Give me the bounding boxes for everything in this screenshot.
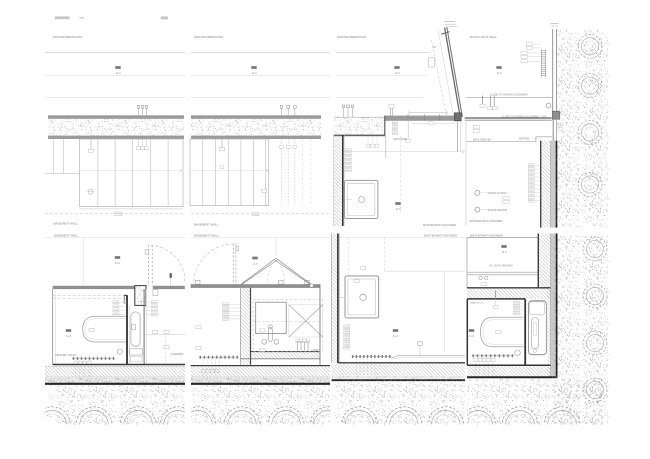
- svg-text:MASTER BATH SHOWER: MASTER BATH SHOWER: [470, 219, 503, 223]
- svg-text:CLOSE TO NOMINAL ALIGNMENT: CLOSE TO NOMINAL ALIGNMENT: [490, 94, 528, 97]
- svg-text:BASEMENT WALL: BASEMENT WALL: [194, 234, 219, 238]
- svg-text:11.0: 11.0: [501, 250, 507, 254]
- svg-text:MASTER BATH SHOWER: MASTER BATH SHOWER: [423, 223, 456, 227]
- svg-text:11.0: 11.0: [66, 334, 72, 338]
- svg-text:11.0: 11.0: [393, 334, 399, 338]
- svg-text:11.0: 11.0: [115, 71, 121, 75]
- svg-text:11.0: 11.0: [252, 261, 258, 265]
- svg-text:UP: UP: [433, 45, 437, 49]
- svg-text:WASTE DEVICE: WASTE DEVICE: [488, 208, 508, 212]
- svg-text:MASTER TOILET: MASTER TOILET: [56, 353, 77, 357]
- svg-text:LAVATO: LAVATO: [312, 349, 321, 352]
- svg-text:ROOF LIGHT WALL: ROOF LIGHT WALL: [470, 35, 498, 39]
- svg-text:WHITE OUTLET: WHITE OUTLET: [488, 191, 508, 195]
- svg-text:METROD: METROD: [519, 137, 530, 140]
- svg-text:MASTER WC: MASTER WC: [471, 301, 485, 304]
- svg-text:MASTER BEDROOM: MASTER BEDROOM: [53, 35, 82, 39]
- svg-text:11.0: 11.0: [496, 71, 502, 75]
- svg-text:MASTER BATH SHOWER: MASTER BATH SHOWER: [424, 234, 457, 238]
- svg-text:(E) - BACK SHELVES: (E) - BACK SHELVES: [489, 264, 513, 267]
- svg-text:BASEMENT WALL: BASEMENT WALL: [194, 223, 219, 227]
- svg-text:BASEMENT WALL: BASEMENT WALL: [54, 234, 79, 238]
- svg-text:11.0: 11.0: [394, 71, 400, 75]
- svg-text:CLEARING: CLEARING: [171, 353, 184, 356]
- svg-text:BASEMENT WALL: BASEMENT WALL: [54, 222, 79, 226]
- svg-text:CLOSE TO NOMINAL ALIGNMENT - T: CLOSE TO NOMINAL ALIGNMENT - TYP: [502, 115, 547, 118]
- svg-text:MASTER BATH SHOWER: MASTER BATH SHOWER: [470, 234, 503, 238]
- svg-text:11.0: 11.0: [251, 71, 257, 75]
- svg-text:BACK SHELVES: BACK SHELVES: [473, 139, 491, 142]
- svg-text:11.0: 11.0: [469, 334, 475, 338]
- svg-text:11.0: 11.0: [115, 261, 121, 265]
- svg-text:MASTER BEDROOM: MASTER BEDROOM: [337, 35, 366, 39]
- svg-text:11.0: 11.0: [395, 207, 401, 211]
- svg-text:MASTER BEDROOM: MASTER BEDROOM: [194, 35, 223, 39]
